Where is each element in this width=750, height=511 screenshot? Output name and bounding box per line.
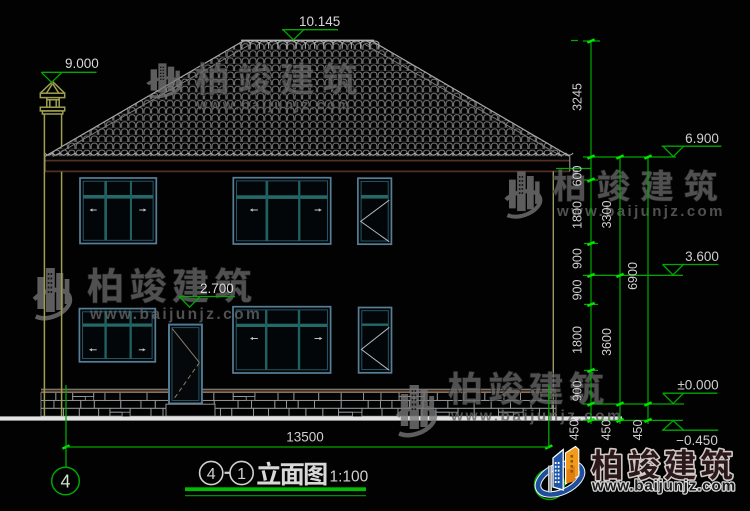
svg-text:3245: 3245 (571, 83, 585, 111)
svg-text:www.baijunjz.com: www.baijunjz.com (89, 306, 262, 323)
svg-text:3300: 3300 (600, 201, 614, 229)
svg-text:450: 450 (568, 420, 582, 441)
svg-text:1800: 1800 (570, 201, 584, 229)
svg-text:1: 1 (237, 466, 246, 483)
svg-text:www.baijunjz.com: www.baijunjz.com (450, 408, 623, 425)
svg-text:2.700: 2.700 (200, 281, 234, 296)
svg-text:3.600: 3.600 (685, 249, 719, 264)
svg-text:6.900: 6.900 (685, 131, 719, 146)
svg-text:www.baijunjz.com: www.baijunjz.com (196, 98, 352, 113)
svg-text:900: 900 (570, 280, 584, 301)
svg-text:6900: 6900 (626, 262, 640, 290)
svg-text:450: 450 (631, 420, 645, 441)
svg-text:13500: 13500 (286, 430, 324, 445)
svg-text:10.145: 10.145 (299, 14, 340, 29)
svg-text:−0.450: −0.450 (676, 433, 718, 448)
svg-text:600: 600 (570, 166, 584, 187)
svg-text:±0.000: ±0.000 (677, 377, 718, 392)
svg-text:9.000: 9.000 (65, 56, 99, 71)
svg-text:900: 900 (570, 248, 584, 269)
svg-text:4: 4 (60, 472, 70, 492)
svg-text:900: 900 (570, 381, 584, 402)
svg-text:4: 4 (207, 466, 216, 483)
svg-text:450: 450 (600, 420, 614, 441)
svg-text:1800: 1800 (570, 326, 584, 354)
svg-text:www.baijunjz.com: www.baijunjz.com (591, 478, 736, 495)
svg-text:3600: 3600 (600, 328, 614, 356)
svg-text:1:100: 1:100 (330, 469, 369, 486)
